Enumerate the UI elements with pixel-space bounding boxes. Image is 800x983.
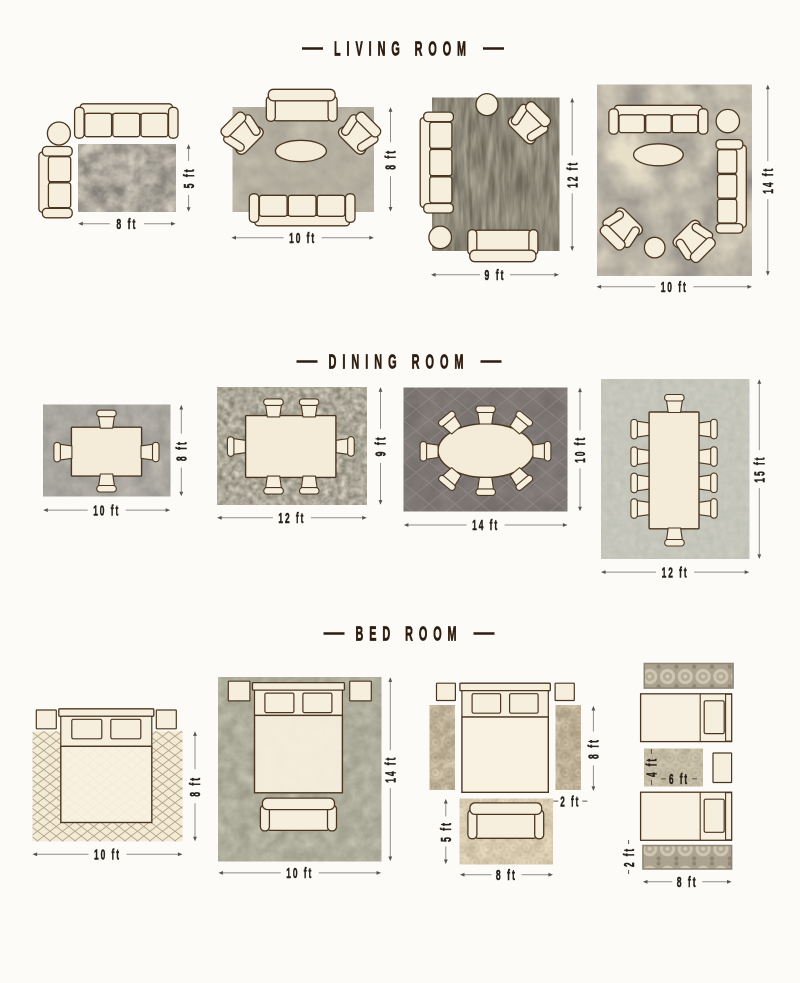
svg-text:5 ft: 5 ft (181, 167, 198, 188)
svg-text:9 ft: 9 ft (485, 267, 506, 284)
svg-text:10 ft: 10 ft (661, 279, 688, 296)
svg-text:8 ft: 8 ft (383, 149, 400, 170)
svg-text:12 ft: 12 ft (564, 161, 581, 188)
svg-text:6 ft: 6 ft (669, 771, 689, 788)
svg-text:14 ft: 14 ft (760, 167, 777, 194)
svg-text:4 ft: 4 ft (644, 757, 661, 777)
svg-text:12 ft: 12 ft (278, 510, 305, 527)
svg-text:DINING ROOM: DINING ROOM (329, 352, 470, 374)
svg-text:14 ft: 14 ft (383, 756, 400, 783)
svg-text:9 ft: 9 ft (373, 435, 390, 456)
svg-text:2 ft: 2 ft (621, 847, 638, 867)
svg-text:2 ft: 2 ft (560, 793, 580, 810)
svg-text:LIVING ROOM: LIVING ROOM (334, 39, 472, 61)
svg-text:10 ft: 10 ft (93, 502, 120, 519)
svg-text:5 ft: 5 ft (438, 821, 455, 842)
svg-text:15 ft: 15 ft (752, 456, 769, 483)
svg-text:10 ft: 10 ft (286, 865, 313, 882)
svg-text:14 ft: 14 ft (472, 517, 499, 534)
svg-text:8 ft: 8 ft (496, 867, 517, 884)
svg-text:8 ft: 8 ft (586, 738, 603, 759)
svg-text:8 ft: 8 ft (187, 776, 204, 797)
svg-text:10 ft: 10 ft (94, 847, 121, 864)
svg-text:12 ft: 12 ft (662, 564, 689, 581)
svg-text:8 ft: 8 ft (174, 440, 191, 461)
svg-text:BED ROOM: BED ROOM (356, 624, 463, 646)
svg-text:10 ft: 10 ft (289, 230, 316, 247)
svg-text:8 ft: 8 ft (677, 874, 698, 891)
svg-text:10 ft: 10 ft (572, 436, 589, 463)
svg-text:8 ft: 8 ft (116, 216, 137, 233)
